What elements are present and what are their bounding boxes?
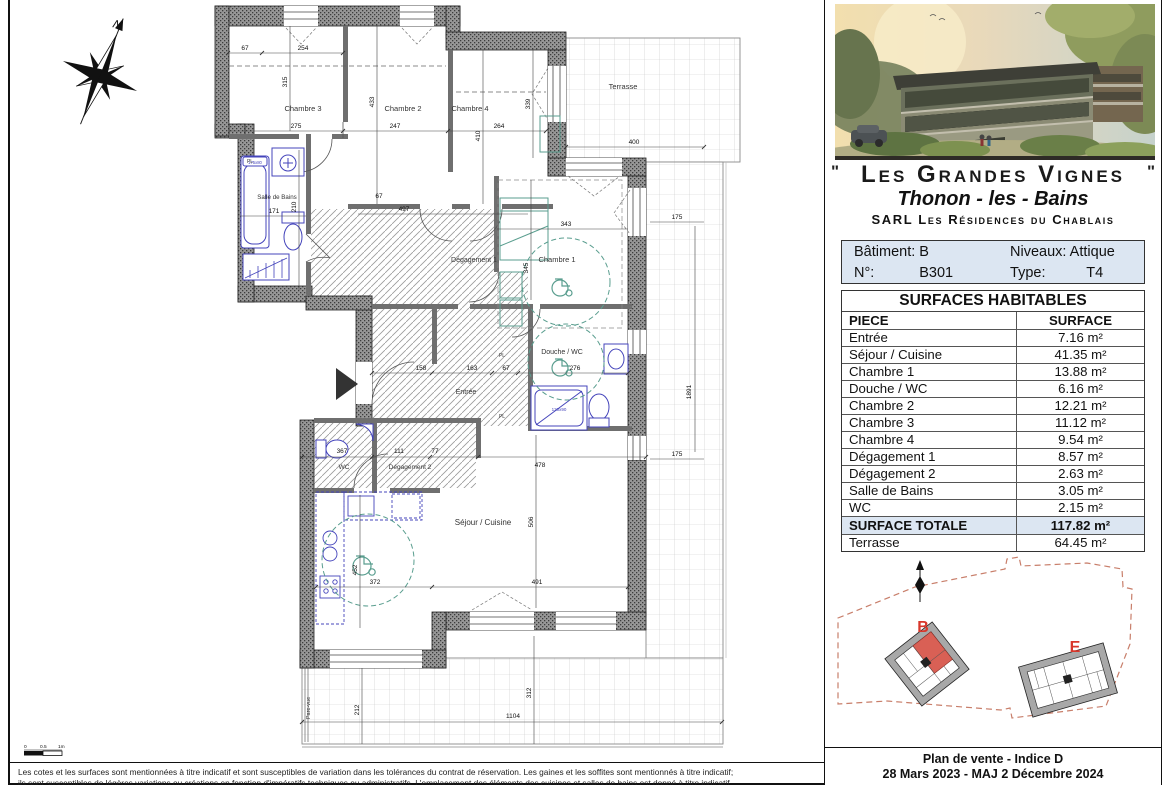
unit-info-table: Bâtiment: B Niveaux: Attique N°: B301 Ty… xyxy=(841,240,1145,284)
dim-label: 175 xyxy=(672,214,683,221)
room-label-pare-vue: Pare-vue xyxy=(306,697,312,719)
developer-name: SARL Les Résidences du Chablais xyxy=(829,211,1157,229)
footer-cartouche: Plan de vente - Indice D 28 Mars 2023 - … xyxy=(825,747,1161,785)
niveaux-cell: Niveaux: Attique xyxy=(998,241,1144,262)
dim-label: 67 xyxy=(241,45,249,52)
dim-label: 506 xyxy=(528,516,535,527)
piece-surface: 41.35 m² xyxy=(1016,347,1144,363)
dim-label: 67 xyxy=(375,193,383,200)
piece-surface: 11.12 m² xyxy=(1016,415,1144,431)
dim-label: 345 xyxy=(523,262,530,273)
type-value: T4 xyxy=(1046,265,1145,281)
dim-label: 175 xyxy=(672,451,683,458)
piece-surface: 13.88 m² xyxy=(1016,364,1144,380)
col-piece: PIECE xyxy=(842,312,1016,329)
table-row: Salle de Bains 3.05 m² xyxy=(842,483,1144,500)
project-title: Les Grandes Vignes xyxy=(841,162,1145,188)
floor-plan-drawing: 67 254 315 275 433 247 264 410 339 400 1… xyxy=(8,0,822,762)
type-cell: Type: T4 xyxy=(998,262,1144,283)
title-block: " Les Grandes Vignes " Thonon - les - Ba… xyxy=(829,162,1157,229)
piece-surface: 2.63 m² xyxy=(1016,466,1144,482)
close-quote: " xyxy=(1145,162,1157,182)
piece-surface: 7.16 m² xyxy=(1016,330,1144,346)
piece-name: Douche / WC xyxy=(842,381,1016,397)
table-row: WC 2.15 m² xyxy=(842,500,1144,517)
dim-label: 367 xyxy=(337,448,348,455)
dim-label: 1891 xyxy=(686,384,693,399)
piece-name: Chambre 2 xyxy=(842,398,1016,414)
piece-name: Séjour / Cuisine xyxy=(842,347,1016,363)
total-row: SURFACE TOTALE 117.82 m² xyxy=(842,517,1144,535)
piece-surface: 12.21 m² xyxy=(1016,398,1144,414)
title-panel: " Les Grandes Vignes " Thonon - les - Ba… xyxy=(824,0,1162,785)
scale-one: 1m xyxy=(58,744,65,750)
batiment-cell: Bâtiment: B xyxy=(842,241,998,262)
dim-label: 410 xyxy=(475,130,482,141)
dim-label: 343 xyxy=(561,221,572,228)
footer-date: 28 Mars 2023 - MAJ 2 Décembre 2024 xyxy=(825,767,1161,782)
numero-label: N°: xyxy=(854,265,874,281)
total-label: SURFACE TOTALE xyxy=(842,517,1016,534)
table-row: Dégagement 1 8.57 m² xyxy=(842,449,1144,466)
entrance-arrow xyxy=(336,368,358,400)
dim-label: 312 xyxy=(526,687,533,698)
site-north-arrow xyxy=(915,560,925,602)
piece-name: Chambre 1 xyxy=(842,364,1016,380)
piece-surface: 3.05 m² xyxy=(1016,483,1144,499)
dim-label: 276 xyxy=(570,365,581,372)
table-row: Chambre 2 12.21 m² xyxy=(842,398,1144,415)
project-city: Thonon - les - Bains xyxy=(829,188,1157,211)
dim-label: 433 xyxy=(369,96,376,107)
dim-label: 212 xyxy=(354,704,361,715)
dim-label: 1104 xyxy=(506,713,520,720)
placard-label: PL xyxy=(247,159,253,165)
room-label-entree: Entrée xyxy=(456,389,477,396)
room-label-sejour-cuisine: Séjour / Cuisine xyxy=(455,518,512,527)
room-label-salle-de-bains: Salle de Bains xyxy=(257,194,297,201)
room-label-terrasse: Terrasse xyxy=(609,82,638,91)
compass-rose: N xyxy=(43,4,160,140)
dim-label: 247 xyxy=(390,123,401,130)
dim-label: 315 xyxy=(282,76,289,87)
piece-name: Dégagement 2 xyxy=(842,466,1016,482)
surfaces-table: SURFACES HABITABLES PIECE SURFACE Entrée… xyxy=(841,290,1145,552)
dim-label: 210 xyxy=(291,201,298,212)
site-plan: B E xyxy=(825,554,1161,744)
dim-label: 491 xyxy=(532,579,543,586)
col-surface: SURFACE xyxy=(1016,312,1144,329)
terrasse-value: 64.45 m² xyxy=(1016,535,1144,551)
dim-label: 163 xyxy=(467,365,478,372)
dim-label: 67 xyxy=(502,365,510,372)
open-quote: " xyxy=(829,162,841,182)
scale-bar: 0 0.5 1m xyxy=(24,744,65,756)
disclaimer-line1: Les cotes et les surfaces sont mentionné… xyxy=(18,767,830,778)
disclaimer: Les cotes et les surfaces sont mentionné… xyxy=(10,762,836,785)
batiment-value: Bâtiment: B xyxy=(854,244,929,260)
piece-surface: 6.16 m² xyxy=(1016,381,1144,397)
kitchen-units xyxy=(316,492,422,624)
piece-surface: 9.54 m² xyxy=(1016,432,1144,448)
dim-label: 452 xyxy=(352,564,359,575)
dim-label: 171 xyxy=(269,208,280,215)
dim-label: 339 xyxy=(525,98,532,109)
piece-name: Entrée xyxy=(842,330,1016,346)
building-b-label: B xyxy=(917,619,929,636)
table-row: Chambre 1 13.88 m² xyxy=(842,364,1144,381)
type-label: Type: xyxy=(1010,265,1045,281)
terrasse-row: Terrasse 64.45 m² xyxy=(842,535,1144,551)
surfaces-table-title: SURFACES HABITABLES xyxy=(842,291,1144,312)
room-label-chambre4: Chambre 4 xyxy=(451,104,488,113)
table-row: Séjour / Cuisine 41.35 m² xyxy=(842,347,1144,364)
placard-label: PL xyxy=(499,414,505,420)
table-row: Entrée 7.16 m² xyxy=(842,330,1144,347)
dim-label: 497 xyxy=(399,206,410,213)
footer-title: Plan de vente - Indice D xyxy=(825,752,1161,767)
table-row: Chambre 4 9.54 m² xyxy=(842,432,1144,449)
dim-label: 111 xyxy=(394,448,404,455)
room-label-degagement2: Dégagement 2 xyxy=(389,464,432,471)
piece-name: Dégagement 1 xyxy=(842,449,1016,465)
scale-half: 0.5 xyxy=(40,744,47,750)
room-label-wc: WC xyxy=(339,464,350,471)
dim-label: 400 xyxy=(629,139,640,146)
dim-label: 275 xyxy=(291,123,302,130)
piece-name: Chambre 4 xyxy=(842,432,1016,448)
numero-value: B301 xyxy=(874,265,998,281)
dim-label: 254 xyxy=(298,45,309,52)
dim-label: 478 xyxy=(535,462,546,469)
piece-name: WC xyxy=(842,500,1016,516)
placard-label: PL xyxy=(499,353,505,359)
dim-label: 158 xyxy=(416,365,427,372)
total-value: 117.82 m² xyxy=(1016,517,1144,534)
scale-zero: 0 xyxy=(24,744,27,750)
dim-label: 77 xyxy=(431,448,439,455)
piece-surface: 8.57 m² xyxy=(1016,449,1144,465)
room-label-chambre3: Chambre 3 xyxy=(284,104,321,113)
piece-surface: 2.15 m² xyxy=(1016,500,1144,516)
table-row: Chambre 3 11.12 m² xyxy=(842,415,1144,432)
building-e-label: E xyxy=(1070,639,1081,656)
disclaimer-line2: ils sont susceptibles de légères variati… xyxy=(18,778,830,785)
shower-size-label: 120x90 xyxy=(552,407,567,412)
piece-name: Chambre 3 xyxy=(842,415,1016,431)
room-label-douche-wc: Douche / WC xyxy=(541,349,583,356)
dim-label: 264 xyxy=(494,123,505,130)
piece-name: Salle de Bains xyxy=(842,483,1016,499)
room-label-degagement1: Dégagement 1 xyxy=(451,257,497,264)
numero-cell: N°: B301 xyxy=(842,262,998,283)
terrasse-label: Terrasse xyxy=(842,535,1016,551)
table-row: Dégagement 2 2.63 m² xyxy=(842,466,1144,483)
building-rendering xyxy=(835,4,1155,160)
table-row: Douche / WC 6.16 m² xyxy=(842,381,1144,398)
room-label-chambre1: Chambre 1 xyxy=(538,255,575,264)
surfaces-header-row: PIECE SURFACE xyxy=(842,312,1144,330)
plan-sheet: 67 254 315 275 433 247 264 410 339 400 1… xyxy=(0,0,1170,785)
dim-label: 372 xyxy=(370,579,381,586)
room-label-chambre2: Chambre 2 xyxy=(384,104,421,113)
niveaux-value: Niveaux: Attique xyxy=(1010,244,1115,260)
